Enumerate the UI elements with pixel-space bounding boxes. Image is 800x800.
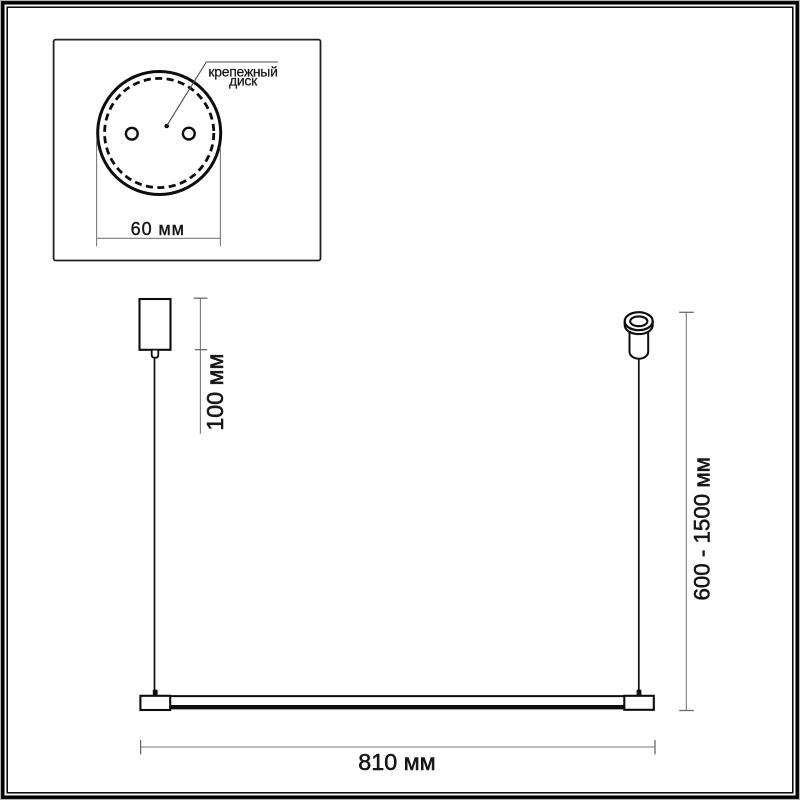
svg-text:600 - 1500 мм: 600 - 1500 мм bbox=[689, 457, 714, 600]
svg-text:100 мм: 100 мм bbox=[202, 354, 228, 431]
svg-text:810 мм: 810 мм bbox=[358, 749, 435, 775]
svg-text:диск: диск bbox=[229, 73, 258, 89]
svg-text:60 мм: 60 мм bbox=[131, 219, 185, 239]
